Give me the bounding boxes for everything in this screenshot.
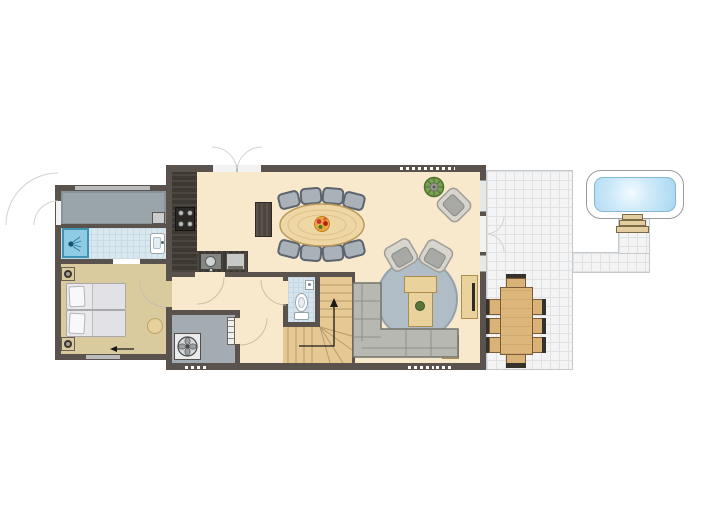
potted-plant (425, 178, 444, 197)
entrance-door-arc-outer (6, 173, 58, 225)
bedroom-arrow (110, 346, 134, 352)
entrance-door-arc (34, 201, 58, 225)
armchair-right (417, 238, 454, 275)
terrace-door-arc-bottom (486, 234, 504, 252)
garden-door-arc-right (237, 147, 262, 172)
bedroom-door-arc (140, 281, 166, 307)
interior-door-arcs (140, 277, 286, 345)
plan-overlay (0, 0, 713, 519)
armchair-left (382, 237, 419, 274)
stairs-up-arrow (299, 298, 338, 346)
stairs-treads (288, 285, 352, 363)
fruit-bowl (315, 217, 330, 232)
utility-door-arc (240, 318, 267, 345)
toilet-door-arc (261, 280, 286, 305)
corner-sofa (353, 283, 458, 357)
garden-door-arc-left (212, 147, 237, 172)
terrace-door-arc-top (486, 216, 504, 234)
door-swing-arcs (6, 147, 504, 252)
living-hall-door-arc (197, 277, 224, 304)
floor-plan-canvas (0, 0, 713, 519)
